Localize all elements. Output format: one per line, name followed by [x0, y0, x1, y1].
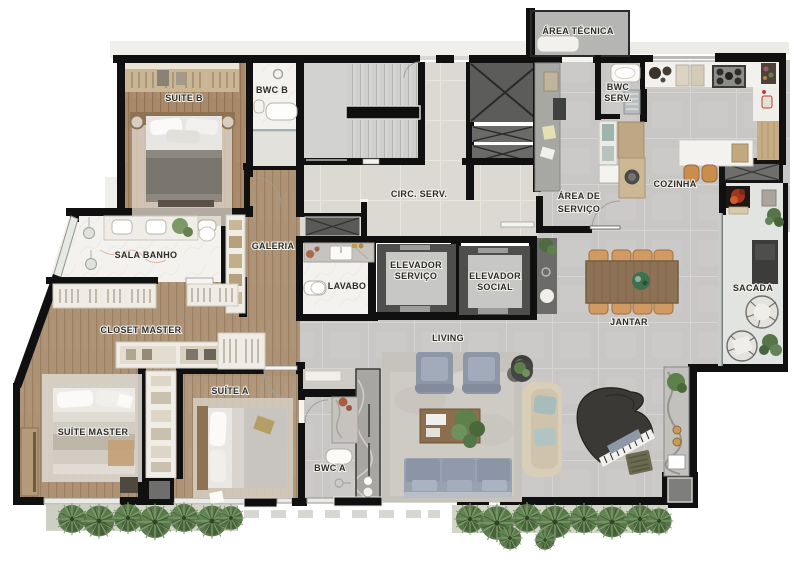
- svg-text:COZINHA: COZINHA: [653, 179, 696, 189]
- svg-text:GALERIA: GALERIA: [252, 241, 295, 251]
- svg-text:BWC: BWC: [607, 82, 630, 92]
- svg-text:BWC B: BWC B: [256, 85, 288, 95]
- svg-text:SERVIÇO: SERVIÇO: [395, 271, 437, 281]
- svg-text:SALA BANHO: SALA BANHO: [115, 250, 178, 260]
- svg-text:ÁREA DE: ÁREA DE: [558, 191, 600, 201]
- svg-text:ELEVADOR: ELEVADOR: [390, 260, 442, 270]
- svg-text:SUÍTE A: SUÍTE A: [211, 386, 248, 396]
- svg-text:JANTAR: JANTAR: [610, 317, 648, 327]
- svg-text:SOCIAL: SOCIAL: [477, 282, 513, 292]
- svg-text:SACADA: SACADA: [733, 283, 774, 293]
- svg-text:SERV.: SERV.: [604, 93, 632, 103]
- svg-text:SUITE B: SUITE B: [165, 93, 203, 103]
- svg-text:CIRC. SERV.: CIRC. SERV.: [391, 189, 447, 199]
- svg-text:SUÍTE MASTER: SUÍTE MASTER: [58, 427, 129, 437]
- svg-text:BWC A: BWC A: [314, 463, 346, 473]
- svg-text:LAVABO: LAVABO: [328, 281, 366, 291]
- svg-text:ÁREA TÉCNICA: ÁREA TÉCNICA: [542, 26, 613, 36]
- svg-text:ELEVADOR: ELEVADOR: [469, 271, 521, 281]
- svg-text:SERVIÇO: SERVIÇO: [558, 204, 600, 214]
- svg-text:CLOSET MASTER: CLOSET MASTER: [101, 325, 182, 335]
- svg-text:LIVING: LIVING: [432, 333, 464, 343]
